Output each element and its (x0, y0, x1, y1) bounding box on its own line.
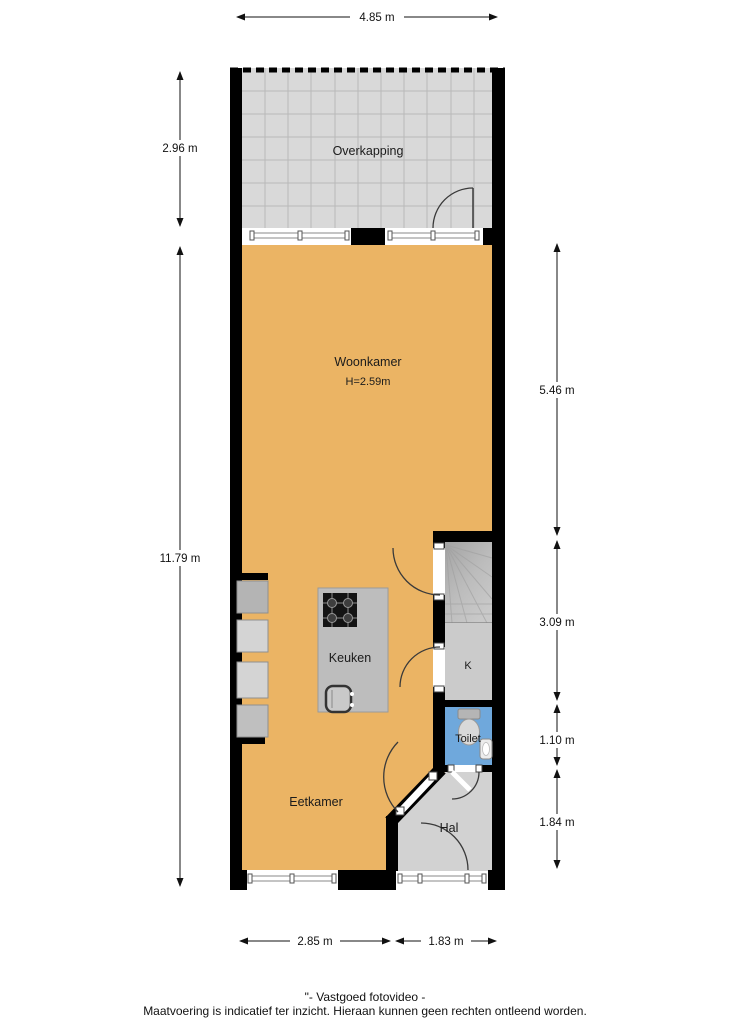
room-label-woonkamer: Woonkamer (334, 355, 401, 369)
floorplan-drawing: Overkapping Woonkamer H=2.59m Keuken K T… (0, 0, 730, 1032)
dimension-right-stairs: 3.09 m (539, 617, 574, 629)
room-label-eetkamer: Eetkamer (289, 795, 343, 809)
room-label-woonkamer-height: H=2.59m (346, 376, 391, 388)
stairs-icon (445, 542, 492, 623)
sink-icon (326, 686, 354, 712)
dimension-right-toilet: 1.10 m (539, 735, 574, 747)
room-label-kast: K (464, 660, 472, 672)
eetkamer-door-jamb-top (429, 772, 437, 780)
dimension-bottom-hal: 1.83 m (428, 936, 463, 948)
dimension-right-woonkamer: 5.46 m (539, 385, 574, 397)
footer-disclaimer: Maatvoering is indicatief ter inzicht. H… (143, 1004, 587, 1018)
dimension-bottom-eetkamer: 2.85 m (297, 936, 332, 948)
footer-credit: "- Vastgoed fotovideo - (305, 990, 426, 1004)
stove-icon (323, 593, 357, 627)
dimension-right-hal: 1.84 m (539, 817, 574, 829)
dimension-top: 4.85 m (359, 12, 394, 24)
dimension-left-overkapping: 2.96 m (162, 143, 197, 155)
hand-basin-icon (480, 739, 492, 759)
room-label-toilet: Toilet (455, 733, 481, 745)
room-label-keuken: Keuken (329, 651, 371, 665)
room-label-hal: Hal (440, 821, 459, 835)
room-label-overkapping: Overkapping (333, 144, 404, 158)
dimension-left-total: 11.79 m (160, 553, 201, 565)
floorplan-page: Overkapping Woonkamer H=2.59m Keuken K T… (0, 0, 730, 1032)
